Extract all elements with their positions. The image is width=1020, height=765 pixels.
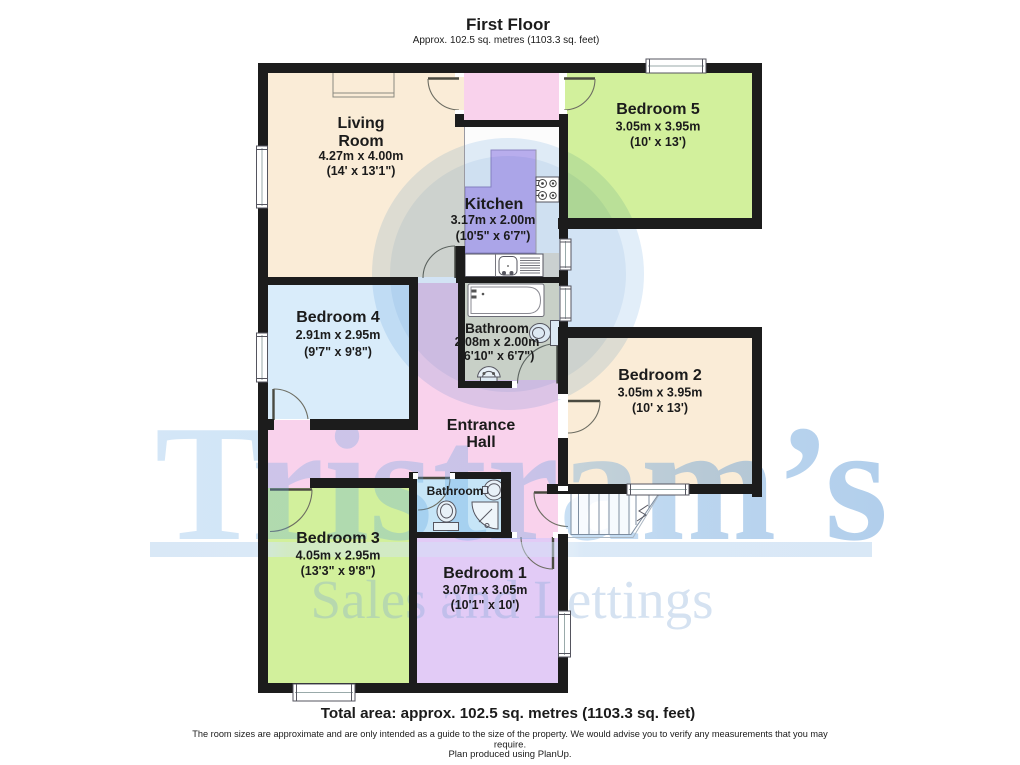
svg-text:3.05m x 3.95m: 3.05m x 3.95m	[616, 120, 701, 134]
svg-text:Bedroom 3: Bedroom 3	[296, 530, 380, 547]
svg-text:Bedroom 4: Bedroom 4	[296, 309, 380, 326]
svg-text:(9'7" x 9'8"): (9'7" x 9'8")	[304, 345, 372, 359]
svg-text:Living: Living	[337, 115, 384, 132]
svg-text:The room sizes are approximate: The room sizes are approximate and are o…	[192, 729, 828, 739]
svg-text:(6'10" x 6'7"): (6'10" x 6'7")	[460, 349, 535, 363]
svg-text:(14' x 13'1"): (14' x 13'1")	[327, 164, 396, 178]
svg-text:Bathroom: Bathroom	[427, 484, 484, 498]
svg-text:3.17m x 2.00m: 3.17m x 2.00m	[451, 213, 536, 227]
svg-text:Bedroom 2: Bedroom 2	[618, 367, 702, 384]
svg-text:4.27m x 4.00m: 4.27m x 4.00m	[319, 149, 404, 163]
svg-text:Bathroom: Bathroom	[465, 321, 529, 336]
svg-text:Room: Room	[338, 133, 383, 150]
svg-text:Approx. 102.5 sq. metres (1103: Approx. 102.5 sq. metres (1103.3 sq. fee…	[413, 35, 600, 46]
svg-text:(10' x 13'): (10' x 13')	[632, 401, 688, 415]
svg-text:Total area: approx. 102.5 sq.: Total area: approx. 102.5 sq. metres (11…	[321, 705, 696, 722]
svg-text:3.05m x 3.95m: 3.05m x 3.95m	[618, 386, 703, 400]
svg-text:(10'1" x 10'): (10'1" x 10')	[451, 598, 520, 612]
svg-text:Bedroom 1: Bedroom 1	[443, 565, 527, 582]
svg-text:2.91m x 2.95m: 2.91m x 2.95m	[296, 328, 381, 342]
svg-text:(10'5" x 6'7"): (10'5" x 6'7")	[456, 229, 531, 243]
svg-text:Hall: Hall	[466, 434, 495, 451]
svg-text:3.07m x 3.05m: 3.07m x 3.05m	[443, 583, 528, 597]
svg-text:Entrance: Entrance	[447, 417, 516, 434]
svg-text:(13'3" x 9'8"): (13'3" x 9'8")	[301, 564, 376, 578]
svg-text:2.08m x 2.00m: 2.08m x 2.00m	[455, 335, 540, 349]
svg-text:4.05m x 2.95m: 4.05m x 2.95m	[296, 549, 381, 563]
svg-text:(10' x 13'): (10' x 13')	[630, 135, 686, 149]
svg-text:First Floor: First Floor	[466, 15, 550, 34]
svg-text:Plan produced using PlanUp.: Plan produced using PlanUp.	[448, 749, 571, 760]
svg-text:Bedroom 5: Bedroom 5	[616, 101, 700, 118]
svg-text:Kitchen: Kitchen	[465, 196, 524, 213]
